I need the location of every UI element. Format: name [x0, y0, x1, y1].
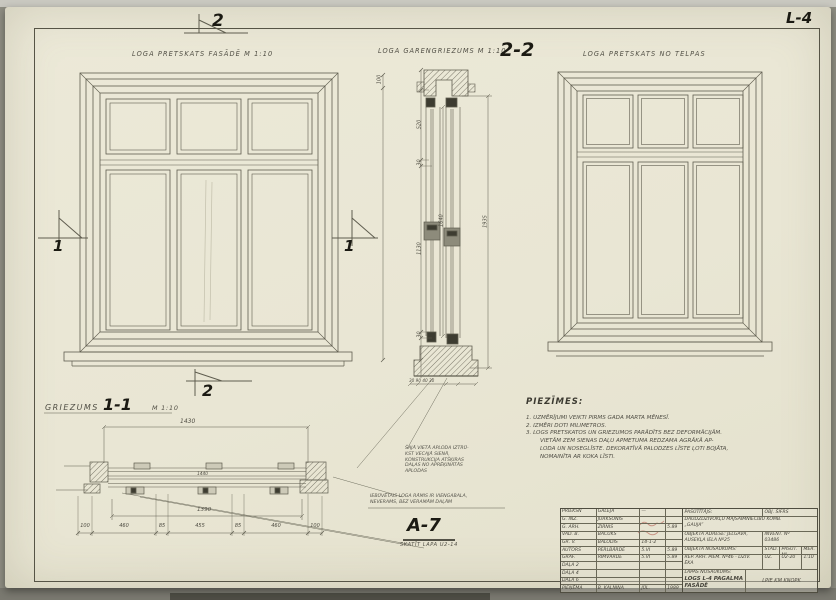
section-mark-1-right: 1	[344, 239, 354, 254]
titleblock-cell: 14-1-2	[640, 540, 666, 547]
table-row: GR. V. BALODIS 14-1-2	[561, 540, 682, 548]
table-row: AUTORS PERLBĀRDE 5.VI 5.89	[561, 547, 682, 555]
titleblock-cell: 5.VI	[640, 555, 666, 562]
heading-section-view: LOGA GARENGRIEZUMS M 1:10	[378, 47, 506, 55]
titleblock-text: 03486	[765, 538, 816, 544]
detail-reference: SKATĪT LAPA U2-14	[400, 542, 458, 548]
dim-label: 30	[418, 322, 423, 348]
dim-label: 1640	[440, 208, 445, 234]
heading-section-mark: 2-2	[500, 41, 534, 60]
note-line: NOMAINĪTA AR KOKA LĪSTI.	[540, 454, 728, 462]
dim-label: 520	[418, 112, 423, 138]
titleblock-cell: ZIRNIS	[597, 524, 641, 531]
annotation-note-a: ŠAJĀ VIETĀ APLODA IZTRŪ- KST VECAJĀ SIEN…	[405, 446, 469, 475]
sheet-title: LOGS L-4 PAGALMA	[685, 576, 744, 583]
titleblock-cell: OBJEKTA ADRESE: JELGAVA, AUSEKĻA IELA Nº…	[683, 532, 763, 546]
annotation-line: APLODAS	[405, 469, 469, 475]
table-row: REP. ARH. PIEM. Nº46 - DZĪV. ĒKA UZ. U2-…	[683, 555, 817, 570]
dim-label: 460	[244, 524, 308, 529]
title-block-info: PASŪTĪTĀJS: OBJ. ŠIFRS DAUDZDZĪVOKĻU MĀJ…	[683, 509, 817, 592]
titleblock-cell: BALODIS	[597, 540, 641, 547]
notes-list: 1. UZMĒRĪJUMI VEIKTI PIRMS GADA MARTA MĒ…	[526, 415, 728, 461]
titleblock-text: „GAUJA”	[685, 523, 816, 529]
titleblock-cell: —	[640, 509, 666, 516]
titleblock-cell	[640, 532, 666, 539]
table-row: DAĻA 2	[561, 562, 682, 570]
titleblock-cell: DAUDZDZĪVOKĻU MĀJSAIMNIECĪBU KOMB. „GAUJ…	[683, 517, 817, 531]
table-row: PASŪTĪTĀJS: OBJ. ŠIFRS	[683, 509, 817, 517]
titleblock-cell	[597, 562, 641, 569]
titleblock-cell: INVENT. Nº 03486	[763, 532, 817, 546]
approval-stamp: LPIE KM KNOPK	[746, 570, 817, 592]
titleblock-cell: U2-20	[780, 555, 802, 569]
titleblock-cell	[666, 532, 682, 539]
annotation-line: IEBŪVĒTAIS LOGA RĀMIS IR VIENGABALA,	[370, 494, 467, 500]
dim-label: 460	[92, 524, 156, 529]
titleblock-cell: VAD. B.	[561, 532, 597, 539]
section-mark-2-top: 2	[212, 13, 224, 30]
titleblock-cell	[666, 517, 682, 524]
titleblock-cell: RIMVĀRDE	[597, 555, 641, 562]
section-label: GRIEZUMS	[45, 403, 99, 412]
heading-interior-view: LOGA PRETSKATS NO TELPAS	[583, 50, 706, 58]
titleblock-cell: OBJEKTA NOSAUKUMS:	[683, 547, 763, 554]
titleblock-cell: 5.VI	[640, 547, 666, 554]
titleblock-cell	[640, 570, 666, 577]
titleblock-cell: GRAF.	[561, 555, 597, 562]
titleblock-cell: G. ARH.	[561, 524, 597, 531]
titleblock-cell: PRIEKŠN	[561, 509, 597, 516]
titleblock-cell: DAĻA 2	[561, 562, 597, 569]
section-label-mark: 1-1	[103, 397, 132, 413]
detail-mark: A-7	[407, 517, 441, 535]
notes-title: PIEZĪMES:	[526, 397, 583, 407]
titleblock-cell	[666, 540, 682, 547]
table-row: GRAF. RIMVĀRDE 5.VI 5.89	[561, 555, 682, 563]
titleblock-cell: REP. ARH. PIEM. Nº46 - DZĪV. ĒKA	[683, 555, 763, 569]
titleblock-cell	[666, 578, 682, 585]
titleblock-cell: OBJ. ŠIFRS	[763, 509, 817, 516]
titleblock-cell: DAĻA 6	[561, 578, 597, 585]
titleblock-cell	[666, 509, 682, 516]
titleblock-cell: 5.89	[666, 555, 682, 562]
titleblock-cell	[640, 562, 666, 569]
dim-label: 1130	[418, 236, 423, 262]
dim-chain: 100 460 85 455 85 460 100	[78, 524, 322, 529]
titleblock-cell: PASŪTĪTĀJS:	[683, 509, 763, 516]
table-row: OBJEKTA ADRESE: JELGAVA, AUSEKĻA IELA Nº…	[683, 532, 817, 547]
title-block-signature-table: PRIEKŠN GALEJA — G. INŽ. JURKSONIS G. AR…	[561, 509, 683, 592]
dim-label: 1430	[180, 418, 195, 425]
titleblock-cell: PERLBĀRDE	[597, 547, 641, 554]
titleblock-text: REP. ARH. PIEM. Nº46 - DZĪV.	[685, 555, 761, 561]
section-mark-1-left: 1	[53, 239, 63, 254]
dim-label: 85	[156, 524, 168, 529]
dim-label: 100	[308, 524, 322, 529]
table-row: VAD. B. BAČUKS	[561, 532, 682, 540]
title-block: PRIEKŠN GALEJA — G. INŽ. JURKSONIS G. AR…	[560, 508, 818, 593]
heading-facade-view: LOGA PRETSKATS FASĀDĒ M 1:10	[132, 50, 273, 58]
table-row: OBJEKTA NOSAUKUMS: STAD. PASŪT. Nº MĒR.	[683, 547, 817, 555]
annotation-line: ŠAJĀ VIETĀ APLODA IZTRŪ-	[405, 446, 469, 452]
dim-label: 1935	[484, 209, 489, 235]
titleblock-cell: G. INŽ.	[561, 517, 597, 524]
table-row: G. INŽ. JURKSONIS	[561, 517, 682, 525]
titleblock-cell: GALEJA	[597, 509, 641, 516]
titleblock-cell: AUTORS	[561, 547, 597, 554]
annotation-line: NEVERAMS, BEZ VERAMĀM DAĻĀM	[370, 500, 467, 506]
sheet-title: FASĀDĒ	[685, 583, 744, 590]
titleblock-cell	[666, 570, 682, 577]
titleblock-cell: JURKSONIS	[597, 517, 641, 524]
titleblock-cell: GR. V.	[561, 540, 597, 547]
titleblock-cell	[666, 562, 682, 569]
dim-label: 85	[232, 524, 244, 529]
titleblock-cell: 5.89	[666, 547, 682, 554]
titleblock-cell	[597, 570, 641, 577]
titleblock-cell	[597, 578, 641, 585]
dim-label: 30 90 40 30	[409, 378, 434, 383]
titleblock-cell	[640, 578, 666, 585]
titleblock-cell: 1:10	[802, 555, 817, 569]
titleblock-cell: STAD.	[763, 547, 780, 554]
table-row: PRIEKŠN GALEJA —	[561, 509, 682, 517]
sheet-number: L-4	[786, 11, 812, 26]
dim-label: 100	[378, 67, 383, 93]
note-line: 1. UZMĒRĪJUMI VEIKTI PIRMS GADA MARTA MĒ…	[526, 415, 728, 423]
note-line: LODA UN NOSEGLĪSTE. DEKORATĪVĀ PALODZES …	[540, 446, 728, 454]
titleblock-cell: PIEŅĒMA	[561, 585, 597, 592]
scanned-drawing-sheet: L-4 2 2 1 1 LOGA PRETSKATS FASĀDĒ M 1:10…	[0, 0, 836, 600]
dim-label: 1440	[197, 472, 208, 477]
dim-label: 100	[78, 524, 92, 529]
table-row: DAĻA 6	[561, 578, 682, 586]
table-row: LAPAS NOSAUKUMS: LOGS L-4 PAGALMA FASĀDĒ…	[683, 570, 817, 592]
titleblock-cell	[640, 517, 666, 524]
titleblock-cell	[640, 524, 666, 531]
titleblock-text: AUSEKĻA IELA Nº25	[685, 538, 761, 544]
table-row: G. ARH. ZIRNIS 5.89	[561, 524, 682, 532]
note-line: VIETĀM ZEM SIENAS DAĻU APMETUMA REDZAMA …	[540, 438, 728, 446]
dim-label: 455	[168, 524, 232, 529]
titleblock-cell: JŪL.	[640, 585, 666, 592]
titleblock-cell: PASŪT. Nº	[780, 547, 802, 554]
titleblock-text: ĒKA	[685, 561, 761, 567]
titleblock-cell: 1989	[666, 585, 682, 592]
titleblock-cell: MĒR.	[802, 547, 817, 554]
table-row: PIEŅĒMA B. KALNIŅA JŪL. 1989	[561, 585, 682, 592]
section-label-scale: M 1:10	[152, 404, 179, 412]
note-line: 3. LOGS PRETSKATOS UN GRIEZUMOS PARĀDĪTS…	[526, 430, 728, 438]
annotation-note-b: IEBŪVĒTAIS LOGA RĀMIS IR VIENGABALA, NEV…	[370, 494, 467, 506]
titleblock-cell: 5.89	[666, 524, 682, 531]
section-mark-2-bottom: 2	[202, 383, 213, 399]
dim-label: 30	[418, 150, 423, 176]
titleblock-cell: DAĻA 4	[561, 570, 597, 577]
table-row: DAĻA 4	[561, 570, 682, 578]
table-row: DAUDZDZĪVOKĻU MĀJSAIMNIECĪBU KOMB. „GAUJ…	[683, 517, 817, 532]
titleblock-cell: UZ.	[763, 555, 780, 569]
dim-label: 1390	[197, 507, 211, 513]
titleblock-cell: BAČUKS	[597, 532, 641, 539]
titleblock-cell: B. KALNIŅA	[597, 585, 641, 592]
titleblock-cell: LAPAS NOSAUKUMS: LOGS L-4 PAGALMA FASĀDĒ	[683, 570, 746, 592]
